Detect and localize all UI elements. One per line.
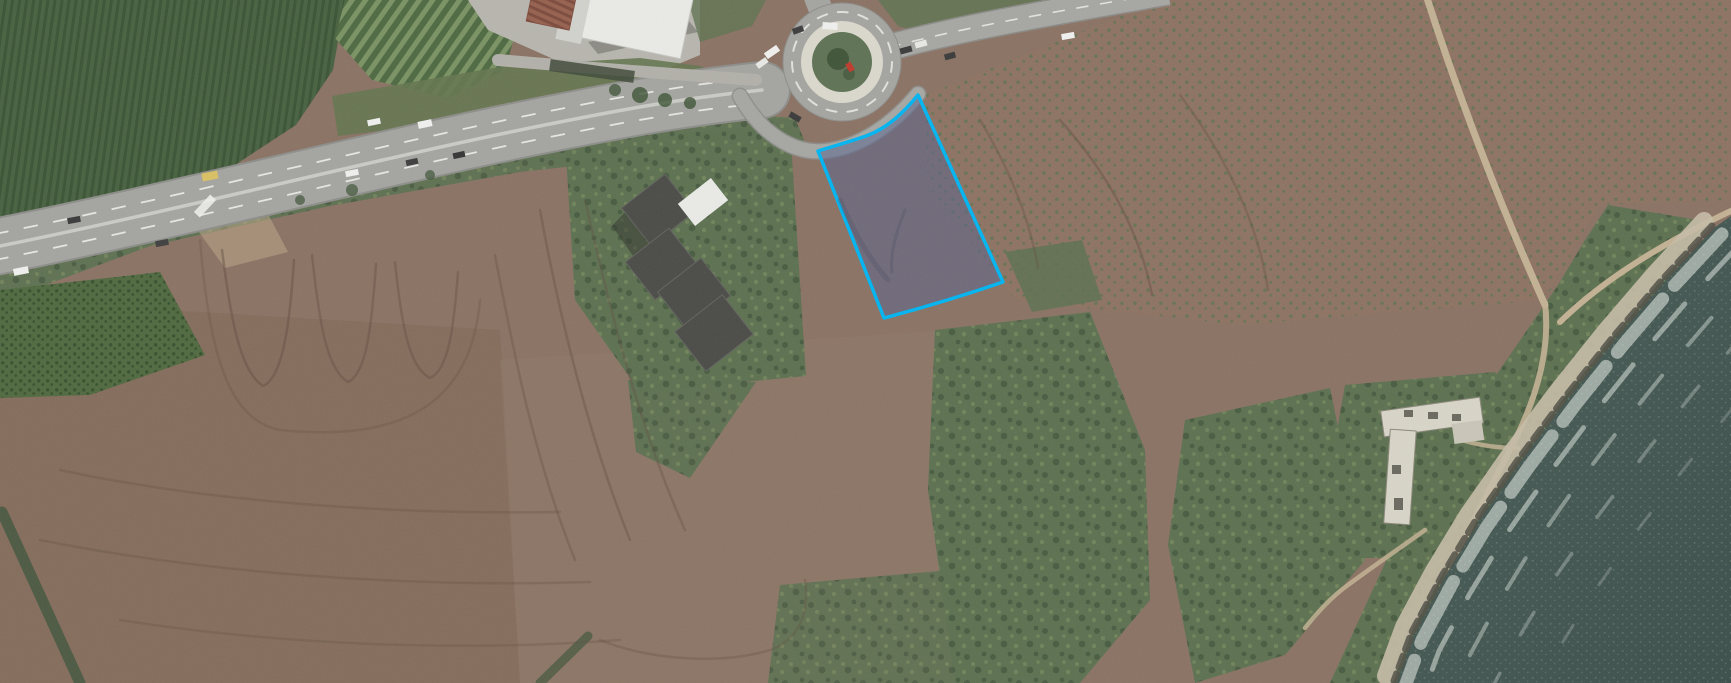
satellite-map[interactable]: [0, 0, 1731, 683]
map-viewport[interactable]: [0, 0, 1731, 683]
satellite-grain: [0, 0, 1731, 683]
